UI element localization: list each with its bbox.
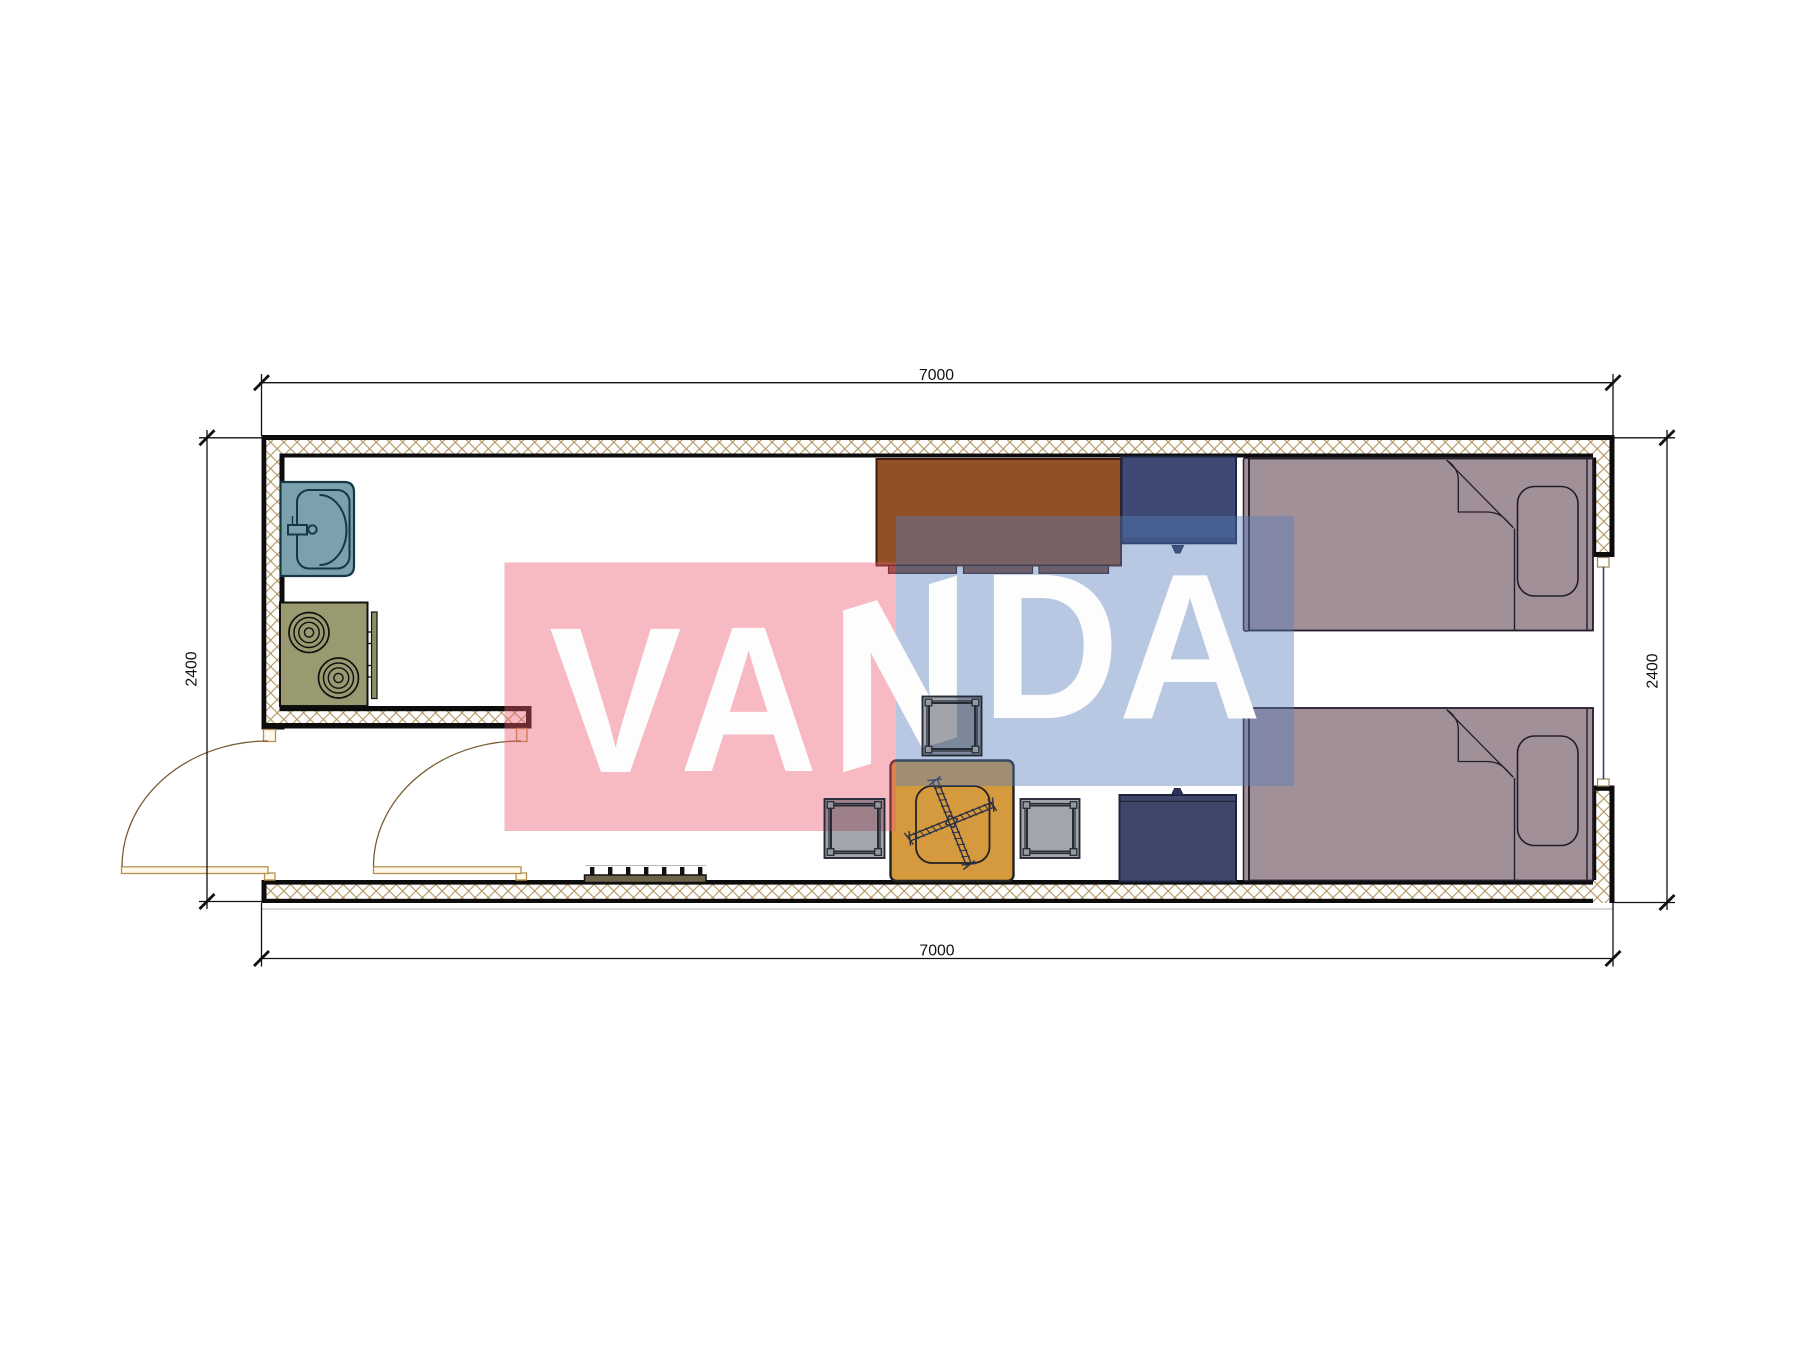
svg-text:7000: 7000 xyxy=(919,943,954,960)
svg-text:D: D xyxy=(981,531,1119,763)
svg-text:A: A xyxy=(680,584,818,816)
svg-text:2400: 2400 xyxy=(184,651,201,686)
svg-text:2400: 2400 xyxy=(1645,653,1662,688)
svg-text:A: A xyxy=(1118,531,1262,763)
svg-text:7000: 7000 xyxy=(919,367,954,384)
svg-text:V: V xyxy=(549,585,682,817)
svg-text:N: N xyxy=(833,525,968,821)
